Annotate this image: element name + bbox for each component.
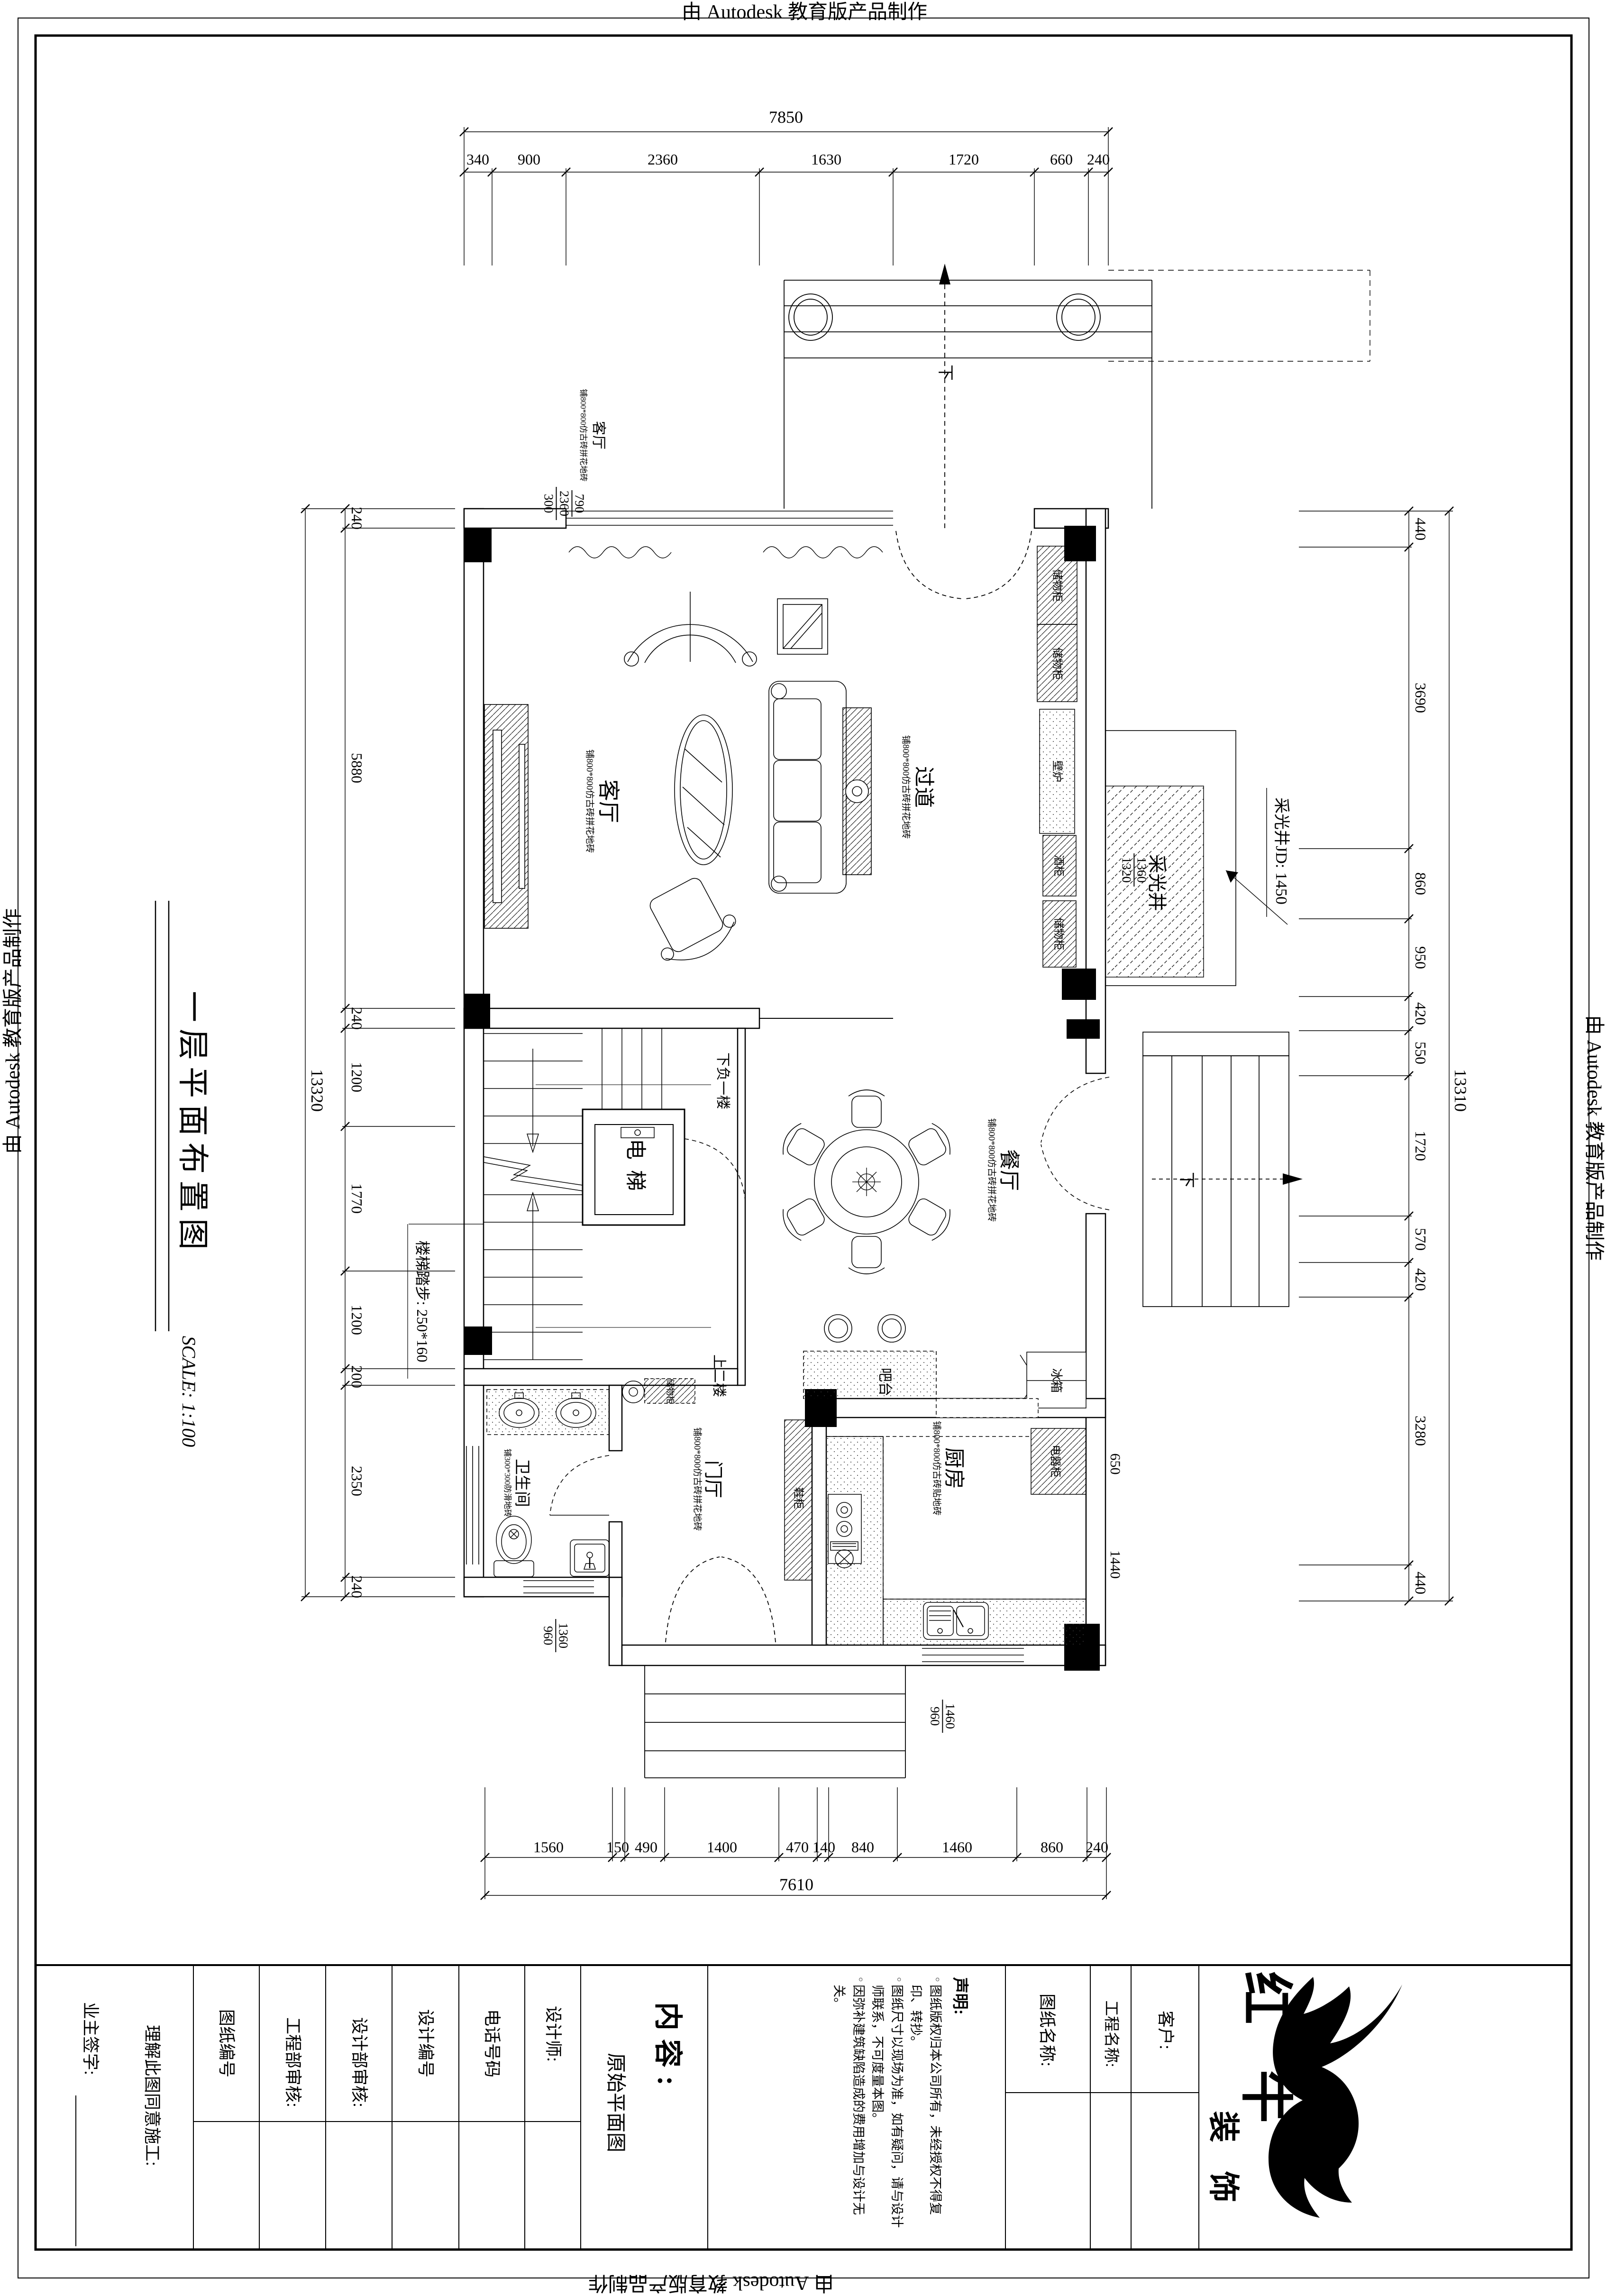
dim-right-seg-5: 550: [1412, 1042, 1428, 1064]
tb-design-audit: 设计部审核:: [350, 2017, 368, 2107]
tb-eng-audit: 工程部审核:: [283, 2017, 301, 2107]
dim-right-seg-6: 1720: [1412, 1131, 1428, 1161]
furniture-living: [484, 592, 871, 973]
tb-logo-suffix: 装 饰: [1206, 2111, 1239, 2213]
dim-bottom-seg-9: 240: [1086, 1839, 1108, 1856]
room-label-lightwell: 采光井: [1147, 854, 1167, 911]
room-label-living: 客厅: [597, 779, 620, 823]
dim-bottom-seg-3: 1400: [707, 1839, 737, 1856]
title-underline: [155, 901, 169, 1331]
annotation-down-stair: 下: [1178, 1172, 1195, 1188]
tb-logo-name: 红 牛: [1237, 1971, 1293, 2139]
dim-top-seg-4: 1720: [949, 152, 979, 168]
room-sub-living: 铺800*800仿古砖拼花地砖: [584, 750, 594, 853]
dim-left-seg-2: 240: [348, 1007, 365, 1030]
annotation-down-b1: 下负一楼: [715, 1052, 730, 1109]
room-label-dining: 餐厅: [998, 1149, 1020, 1191]
sheet-scale: SCALE: 1:100: [179, 1336, 199, 1447]
dim-lightwell-stack: 13601320: [1119, 853, 1149, 887]
room-label-corridor: 过道: [913, 766, 934, 808]
furniture-dining: [778, 1090, 955, 1399]
dim-bottom-seg-0: 1560: [533, 1839, 564, 1856]
room-label-bar: 吧台: [877, 1368, 892, 1396]
dim-bottom-seg-1: 150: [606, 1839, 629, 1856]
dim-left-seg-4: 1770: [348, 1183, 365, 1214]
tb-content-value: 原始平面图: [605, 2053, 626, 2152]
dim-top-seg-3: 1630: [811, 152, 841, 168]
tb-project-name: 工程名称:: [1103, 2000, 1119, 2067]
fixture-label-storage-1: 储物柜: [1051, 569, 1063, 602]
tb-designer: 设计师:: [544, 2006, 562, 2062]
drawing-linework: [0, 0, 1607, 2296]
page-title: 一层平面布置图: [176, 991, 209, 1256]
dim-bottom-seg-5: 140: [813, 1839, 835, 1856]
room-sub-corridor: 铺800*800仿古砖拼花地砖: [901, 735, 910, 839]
tb-statement-1: ○图纸版权归本公司所有，未经授权不得复印、转抄。: [906, 1977, 945, 2236]
dim-right-seg-7: 570: [1412, 1228, 1428, 1251]
dim-left-seg-7: 2350: [348, 1466, 365, 1496]
dim-bottom-seg-7: 1460: [942, 1839, 972, 1856]
dim-right-seg-10: 440: [1412, 1572, 1428, 1594]
dim-left-seg-1: 5880: [348, 753, 365, 783]
annotation-stair-tread: 楼梯踏步: 250*160: [414, 1241, 430, 1363]
room-sub-bath: 铺300*300防滑地砖: [503, 1449, 511, 1518]
dim-right-seg-8: 420: [1412, 1268, 1428, 1291]
dim-kitchen-1440: 1440: [1107, 1550, 1123, 1579]
cabinets: [622, 546, 1086, 1580]
fixture-label-storage-4: 储物柜: [666, 1379, 675, 1404]
fixture-label-fireplace: 壁炉: [1051, 760, 1063, 782]
tb-drawing-name: 图纸名称:: [1038, 1994, 1056, 2067]
dim-right-overall: 13310: [1451, 1069, 1469, 1112]
dim-kitchen-650: 650: [1107, 1454, 1123, 1475]
dim-right-seg-0: 440: [1412, 518, 1428, 540]
autodesk-stamp-right: 由 Autodesk 教育版产品制作: [1583, 1015, 1604, 1261]
sheet-border: [18, 18, 1589, 2278]
tb-phone: 电话号码: [483, 2009, 501, 2077]
tb-statement-2: ○图纸尺寸以现场为准，如有疑问，请与设计师联系，不可度量本图。: [868, 1977, 906, 2236]
fixture-label-appliance: 电器柜: [1050, 1445, 1061, 1478]
room-label-bath: 卫生间: [513, 1459, 530, 1507]
drawing-sheet: 由 Autodesk 教育版产品制作 由 Autodesk 教育版产品制作 由 …: [0, 0, 1607, 2296]
fixture-label-wine: 酒柜: [1053, 855, 1064, 877]
stairs-outdoor: [1143, 1032, 1303, 1307]
tb-content-label: 内容:: [653, 2002, 683, 2094]
room-label-elevator: 电梯: [624, 1139, 646, 1201]
tb-client: 客户:: [1156, 2011, 1174, 2049]
dim-left-seg-5: 1200: [348, 1305, 365, 1335]
fixture-label-fridge: 冰箱: [1050, 1368, 1062, 1393]
dim-top-overall: 7850: [769, 109, 803, 127]
dim-top-seg-6: 240: [1087, 152, 1110, 168]
dim-right-seg-2: 860: [1412, 872, 1428, 895]
dim-left-seg-3: 1200: [348, 1062, 365, 1092]
dim-right-seg-1: 3690: [1412, 683, 1428, 713]
dim-left-seg-6: 200: [348, 1365, 365, 1388]
dim-right-seg-3: 950: [1412, 946, 1428, 969]
dim-bottom-overall: 7610: [779, 1876, 813, 1894]
dim-bath-stack: 1360960: [541, 1619, 571, 1652]
dim-left-seg-8: 240: [348, 1575, 365, 1598]
dim-right-seg-4: 420: [1412, 1002, 1428, 1025]
dim-right-seg-9: 3280: [1412, 1416, 1428, 1446]
dim-top-seg-0: 340: [466, 152, 489, 168]
stairs-main: [408, 1028, 711, 1379]
autodesk-stamp-bottom: 由 Autodesk 教育版产品制作: [588, 2272, 834, 2293]
tb-agree: 理解此图同意施工:: [143, 2025, 161, 2166]
annotation-up-2: 上二楼: [711, 1354, 726, 1397]
tb-statement-3: ○因弥补建筑缺陷造成的费用增加与设计无关。: [830, 1977, 868, 2236]
tb-design-no: 设计编号: [416, 2009, 434, 2077]
dim-top-seg-5: 660: [1050, 152, 1073, 168]
dim-bottom-seg-8: 860: [1041, 1839, 1063, 1856]
dim-left-seg-0: 240: [348, 507, 365, 530]
room-sub-kitchen: 铺800*800仿古砖贴地砖: [931, 1421, 941, 1516]
autodesk-stamp-left: 由 Autodesk 教育版产品制作: [3, 908, 24, 1154]
fixture-label-shoe: 鞋柜: [793, 1487, 804, 1509]
fixture-label-storage-3: 储物柜: [1053, 918, 1064, 951]
room-label-foyer: 门厅: [703, 1460, 723, 1498]
tb-owner-sign: 业主签字:: [81, 2002, 99, 2075]
dim-left-overall: 13320: [308, 1069, 326, 1112]
dim-window-stack: 7902360300: [541, 487, 586, 520]
dim-bottom-seg-4: 470: [786, 1839, 809, 1856]
dim-top-seg-2: 2360: [648, 152, 678, 168]
dim-bottom-seg-6: 840: [851, 1839, 874, 1856]
room-label-kitchen: 厨房: [943, 1447, 965, 1489]
tb-statement-block: 声明: ○图纸版权归本公司所有，未经授权不得复印、转抄。 ○图纸尺寸以现场为准，…: [830, 1977, 972, 2236]
annotation-lightwell-jd: 采光井JD: 1450: [1272, 797, 1289, 905]
room-label-living-top: 客厅: [591, 421, 606, 449]
tb-statement-title: 声明:: [948, 1977, 972, 2236]
dim-top-seg-1: 900: [518, 152, 540, 168]
columns: [464, 526, 1100, 1671]
fixture-label-storage-2: 储物柜: [1051, 648, 1063, 680]
annotation-down-porch: 下: [936, 365, 953, 381]
room-sub-living-top: 铺800*800仿古砖拼花地砖: [579, 389, 587, 482]
room-sub-foyer: 铺800*800仿古砖拼花地砖: [692, 1427, 702, 1531]
tb-drawing-no: 图纸编号: [217, 2009, 235, 2077]
room-sub-dining: 铺800*800仿古砖拼花地砖: [986, 1118, 996, 1222]
autodesk-stamp-top: 由 Autodesk 教育版产品制作: [682, 2, 927, 23]
dim-bottom-seg-2: 490: [635, 1839, 657, 1856]
dim-kitchen-stack: 1460960: [928, 1700, 958, 1733]
